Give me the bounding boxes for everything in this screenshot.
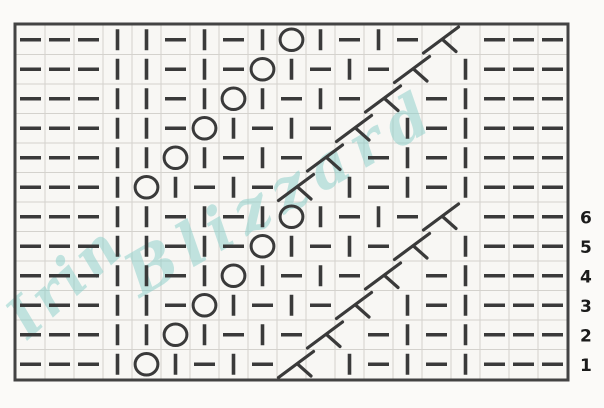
row-number: 5 <box>580 238 592 258</box>
knitting-chart: Irin Blizzard 654321 <box>0 0 604 408</box>
row-number: 1 <box>580 356 592 376</box>
row-number: 3 <box>580 297 592 317</box>
row-number: 4 <box>580 267 592 287</box>
row-number: 2 <box>580 326 592 346</box>
row-number: 6 <box>580 208 592 228</box>
knitting-chart-page: Irin Blizzard 654321 <box>0 0 604 408</box>
